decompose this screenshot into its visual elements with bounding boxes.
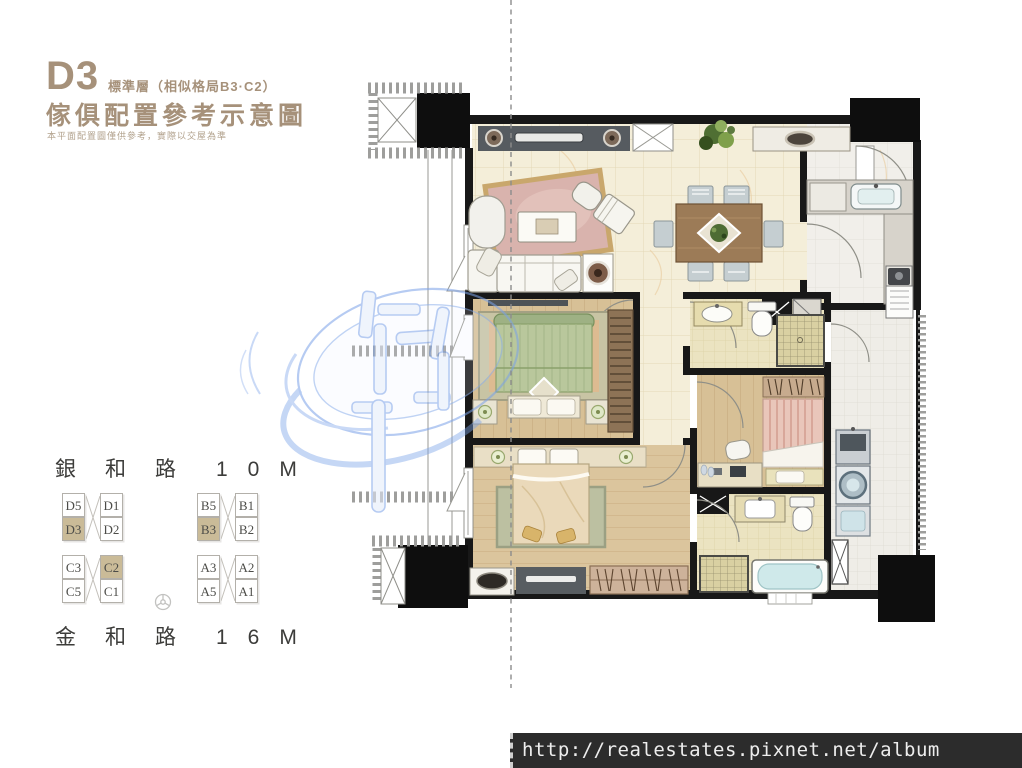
toilet xyxy=(790,497,814,507)
unit-block-B: B5 B1 B3 B2 xyxy=(197,493,259,542)
unit-cell: A1 xyxy=(235,579,258,603)
road-width: 16M xyxy=(216,626,317,649)
unit-cell: C2 xyxy=(100,555,123,579)
unit-block-A: A3 A2 A5 A1 xyxy=(197,555,259,604)
page-title: 傢俱配置參考示意圖 xyxy=(46,96,307,132)
shower-stall xyxy=(700,556,748,592)
disclaimer-text: 本平面配置圖僅供參考，實際以交屋為準 xyxy=(47,129,227,142)
compass-icon xyxy=(156,595,171,610)
unit-cell: C1 xyxy=(100,579,123,603)
road-label-north: 銀和路10M xyxy=(55,453,317,483)
shower-stall xyxy=(777,315,824,366)
road-name: 銀和路 xyxy=(55,458,205,481)
unit-cell: D2 xyxy=(100,517,123,541)
tv-bar xyxy=(488,300,568,306)
core-x-icon xyxy=(86,494,100,541)
floor-note: 標準層（相似格局B3·C2） xyxy=(108,76,277,95)
unit-cell: C3 xyxy=(62,555,85,579)
unit-cell: A3 xyxy=(197,555,220,579)
hallway-floor xyxy=(640,295,690,445)
unit-block-D: D5 D1 D3 D2 xyxy=(62,493,124,542)
unit-cell: C5 xyxy=(62,579,85,603)
core-x-icon xyxy=(221,556,235,603)
unit-cell: D1 xyxy=(100,493,123,517)
watermark-url: http://realestates.pixnet.net/album xyxy=(522,739,940,761)
bath-mat xyxy=(768,593,812,604)
watermark-url-bar: http://realestates.pixnet.net/album xyxy=(510,733,1022,768)
wreath-centerpiece xyxy=(710,224,728,242)
road-width: 10M xyxy=(216,458,317,481)
unit-cell: B3 xyxy=(197,517,220,541)
road-name: 金和路 xyxy=(55,626,205,649)
unit-cell: D5 xyxy=(62,493,85,517)
laptop xyxy=(730,466,746,477)
unit-block-C: C3 C2 C5 C1 xyxy=(62,555,124,604)
unit-cell: A5 xyxy=(197,579,220,603)
core-x-icon xyxy=(86,556,100,603)
lounge-chair xyxy=(469,196,505,248)
wardrobe xyxy=(763,377,824,397)
unit-cell: B5 xyxy=(197,493,220,517)
road-label-south: 金和路16M xyxy=(55,621,317,651)
unit-cell: A2 xyxy=(235,555,258,579)
toilet xyxy=(748,302,776,311)
fridge xyxy=(810,183,846,211)
unit-cell: B2 xyxy=(235,517,258,541)
unit-cell: D3 xyxy=(62,517,85,541)
unit-code: D3 xyxy=(46,54,99,99)
core-x-icon xyxy=(221,494,235,541)
decor-bowl xyxy=(786,132,814,146)
unit-cell: B1 xyxy=(235,493,258,517)
